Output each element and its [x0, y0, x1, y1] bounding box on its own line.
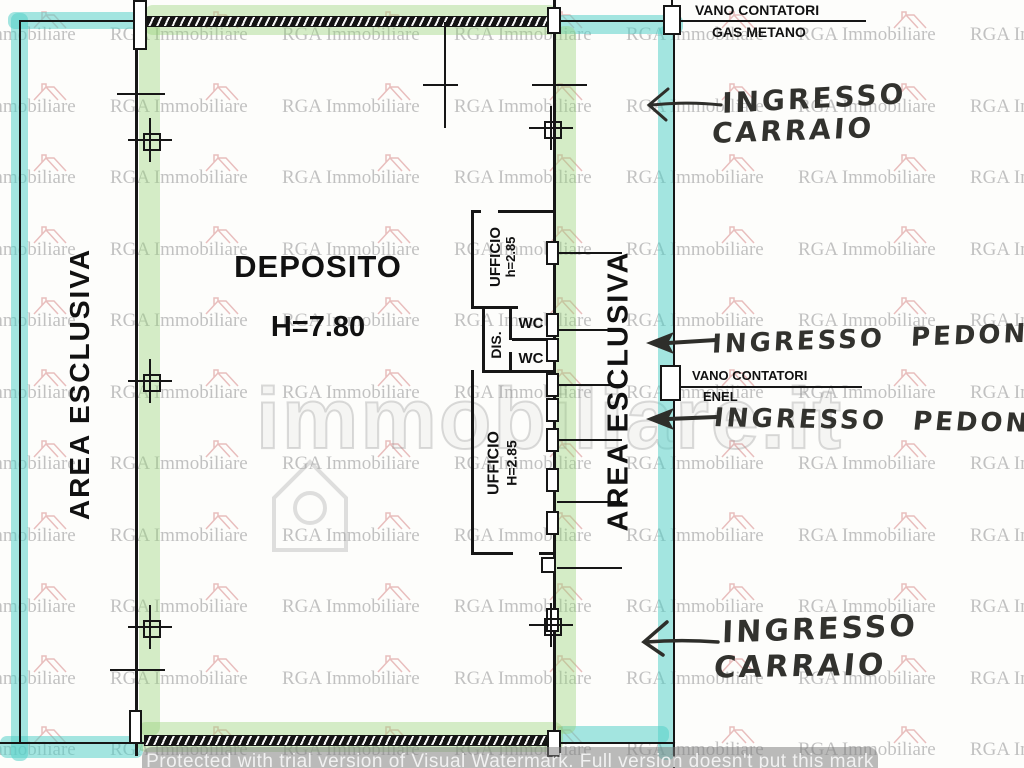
ingresso-pedoni-upper-arrow-icon	[644, 330, 720, 356]
wc-lower-label: WC	[510, 350, 552, 367]
vano-enel-line1: VANO CONTATORI	[692, 368, 807, 383]
dimension-tick	[557, 567, 622, 569]
dis-label: DIS.	[488, 319, 506, 371]
column-marker	[529, 603, 573, 647]
area-esclusiva-left-label: AREA ESCLUSIVA	[64, 244, 102, 524]
ufficio-lower-label: UFFICIO H=2.85	[486, 396, 532, 531]
ingresso-carraio-top-line2: CARRAIO	[711, 111, 875, 150]
ufficio-upper-label: UFFICIO h=2.85	[487, 212, 533, 302]
window-symbol	[546, 398, 559, 422]
ufficio-upper-name: UFFICIO	[487, 212, 504, 302]
vano-gas-line2: GAS METANO	[712, 24, 806, 40]
column-marker	[128, 605, 172, 649]
wc-upper-label: WC	[510, 315, 552, 332]
ingresso-pedoni-lower-arrow-icon	[644, 406, 720, 432]
deposito-height-label: H=7.80	[228, 311, 408, 344]
deposito-label: DEPOSITO	[228, 249, 408, 285]
column-marker	[128, 118, 172, 162]
ingresso-carraio-bottom-line1: INGRESSO	[721, 609, 918, 651]
column-marker	[128, 359, 172, 403]
ingresso-carraio-top-arrow-icon	[635, 85, 725, 125]
ingresso-carraio-bottom-arrow-icon	[630, 615, 720, 660]
area-esclusiva-right-label: AREA ESCLUSIVA	[603, 239, 641, 544]
ingresso-carraio-bottom-line2: CARRAIO	[712, 647, 887, 685]
ufficio-lower-height: H=2.85	[504, 396, 520, 531]
vano-enel-line2: ENEL	[703, 389, 738, 404]
column-marker	[529, 106, 573, 150]
floorplan-page: RGA ImmobiliareRGA ImmobiliareRGA Immobi…	[0, 0, 1024, 768]
vano-gas-line1: VANO CONTATORI	[695, 2, 819, 18]
trial-watermark-notice-text: Protected with trial version of Visual W…	[142, 747, 878, 768]
trial-watermark-notice: Protected with trial version of Visual W…	[142, 747, 878, 768]
ufficio-lower-name: UFFICIO	[486, 396, 504, 531]
ingresso-pedoni-lower-text: INGRESSO PEDONI	[712, 403, 1024, 439]
ufficio-upper-height: h=2.85	[504, 212, 519, 302]
window-symbol	[546, 468, 559, 492]
window-symbol	[546, 511, 559, 535]
